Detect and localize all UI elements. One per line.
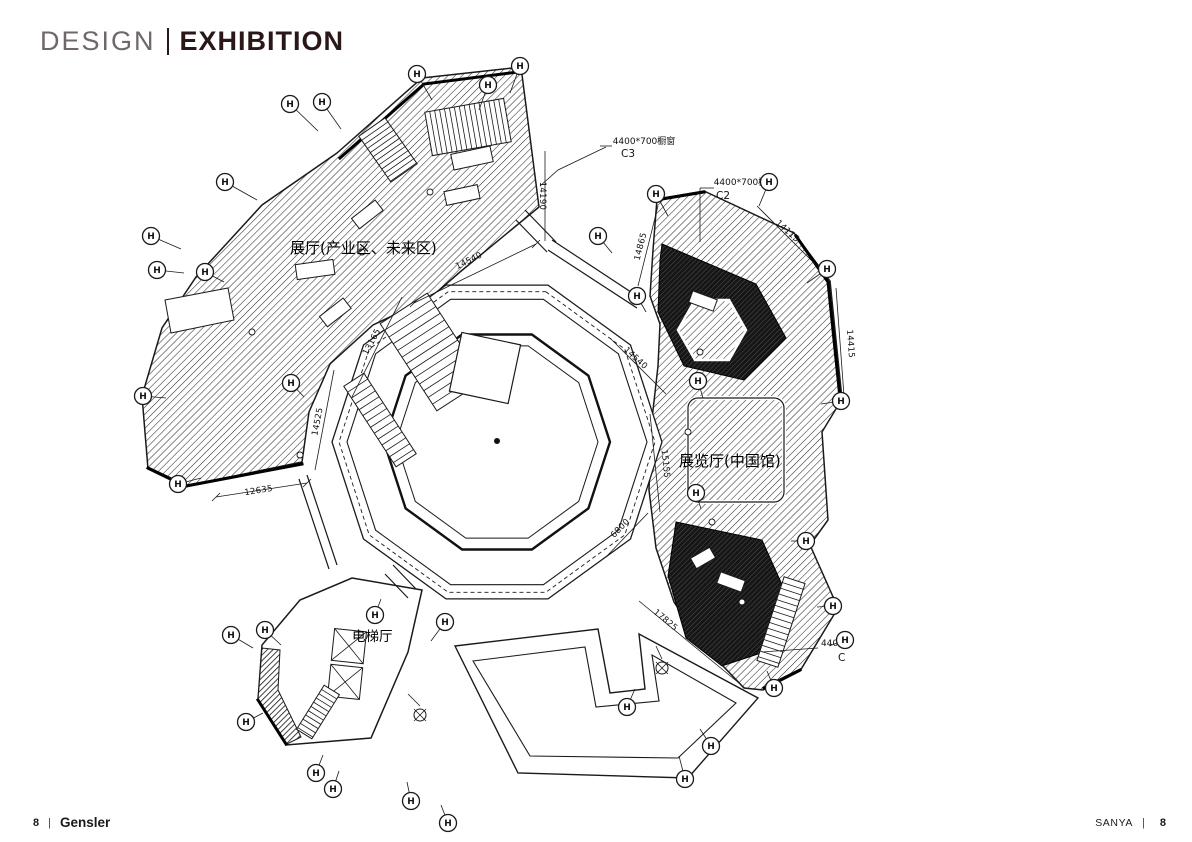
window-tag-text: 4400*700橱窗 [613,135,676,147]
grid-bubble-label: H [802,537,810,547]
window-tag-code: C2 [716,190,730,202]
grid-bubble-label: H [221,178,229,188]
room-label-industry-future: 展厅(产业区、未来区) [290,239,437,257]
grid-bubble-label: H [841,636,849,646]
grid-bubble-label: H [318,98,326,108]
dimension-label: 17825 [651,607,679,633]
grid-bubble-label: H [707,742,715,752]
grid-bubble-label: H [837,397,845,407]
footer-separator: | [48,817,51,829]
grid-bubble-label: H [329,785,337,795]
grid-bubble-label: H [633,292,641,302]
grid-bubble-label: H [770,684,778,694]
footer-separator: | [1142,817,1145,829]
dimension-label: 14190 [537,182,547,211]
floor-plan-drawing: 14540 14190 13165 14525 12635 14865 1411… [0,0,1192,842]
window-tag-code: C3 [621,148,635,160]
page-title: DESIGN EXHIBITION [40,26,344,57]
grid-bubble-label: H [174,480,182,490]
footer-page-number-right: 8 [1160,817,1166,829]
grid-bubble-label: H [823,265,831,275]
column [709,519,715,525]
grid-bubble-label: H [413,70,421,80]
grid-bubble-label: H [227,631,235,641]
column [297,452,303,458]
grid-bubble-label: H [765,178,773,188]
room-label-china-hall: 展览厅(中国馆) [679,452,781,470]
grid-bubble-label: H [484,81,492,91]
grid-bubble-label: H [312,769,320,779]
grid-bubble-label: H [694,377,702,387]
dimension-label: 14865 [633,231,650,261]
center-point [494,438,500,444]
grid-bubble-label: H [407,797,415,807]
column [427,189,433,195]
dimension-label: 12635 [244,484,274,498]
grid-bubble-label: H [201,268,209,278]
page-footer: 8 | Gensler SANYA | 8 [33,815,1166,830]
grid-bubble-label: H [681,775,689,785]
grid-bubble-label: H [287,379,295,389]
grid-bubble-label: H [829,602,837,612]
wing-china-hall [649,191,842,690]
grid-bubble-label: H [286,100,294,110]
grid-bubble-label: H [652,190,660,200]
grid-bubble-label: H [242,718,250,728]
title-separator-bar [167,28,169,55]
column [249,329,255,335]
grid-bubble-label: H [261,626,269,636]
grid-bubble-label: H [692,489,700,499]
dimension-label: 14525 [310,407,325,437]
stair-landing [449,332,520,403]
grid-bubble-label: H [153,266,161,276]
grid-bubble-label: H [516,62,524,72]
wing-elevator-hall [258,578,422,745]
footer-brand: Gensler [60,815,110,830]
grid-bubble-label: H [147,232,155,242]
document-page: DESIGN EXHIBITION [0,0,1192,842]
footer-project-label: SANYA [1095,817,1133,829]
grid-bubble-label: H [139,392,147,402]
column [697,349,703,355]
grid-bubble-label: H [623,703,631,713]
column [685,429,691,435]
statue-icon [408,694,426,721]
room-label-elevator-hall: 电梯厅 [352,629,393,645]
footer-page-number-left: 8 [33,817,39,829]
grid-bubble-label: H [594,232,602,242]
column [739,599,745,605]
grid-bubble-label: H [441,618,449,628]
title-right: EXHIBITION [180,26,345,57]
title-left: DESIGN [40,26,156,57]
window-tag-code: C [838,652,845,664]
grid-bubble-label: H [371,611,379,621]
dimension-label: 14415 [844,329,856,358]
